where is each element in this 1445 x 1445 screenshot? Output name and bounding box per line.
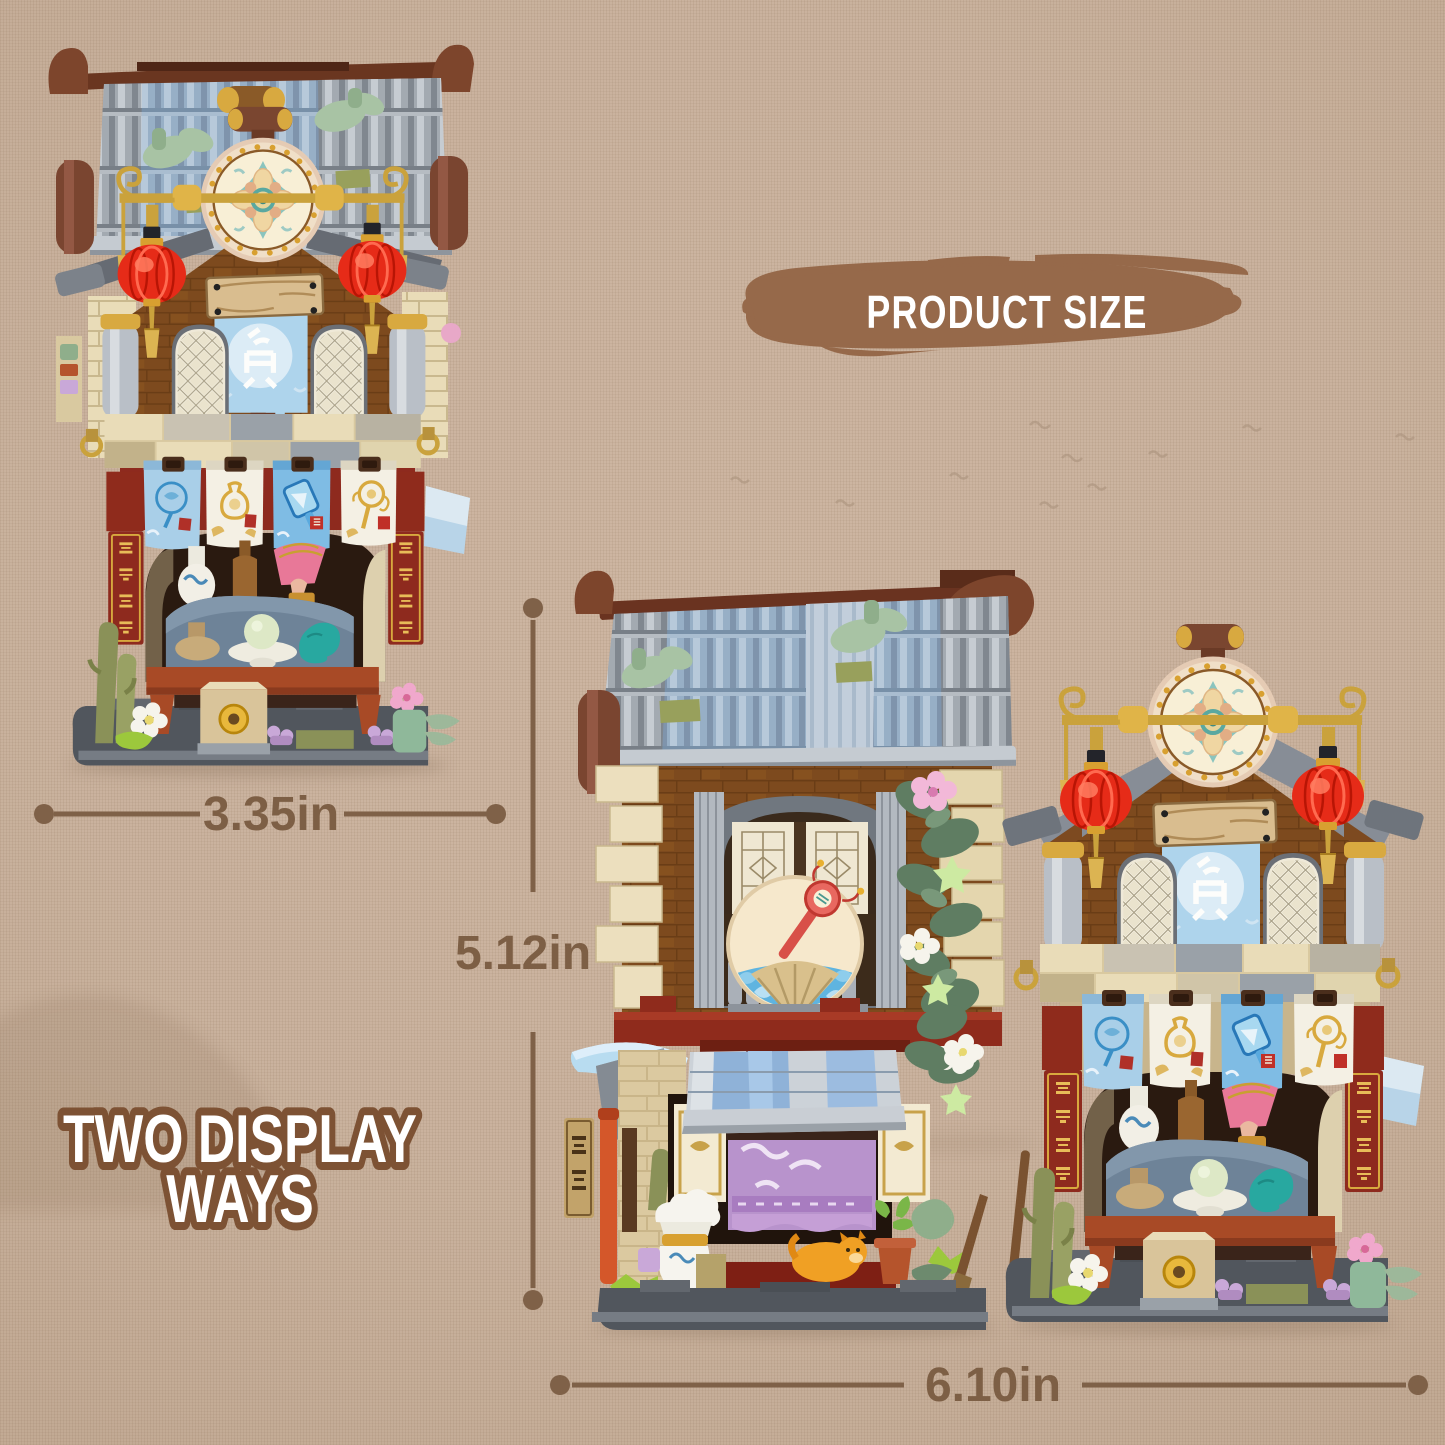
svg-text:3.35in: 3.35in [203,788,339,841]
svg-text:6.10in: 6.10in [925,1359,1061,1412]
svg-text:PRODUCT SIZE: PRODUCT SIZE [866,287,1147,338]
svg-text:WAYS: WAYS [166,1160,313,1237]
svg-text:5.12in: 5.12in [455,927,591,980]
